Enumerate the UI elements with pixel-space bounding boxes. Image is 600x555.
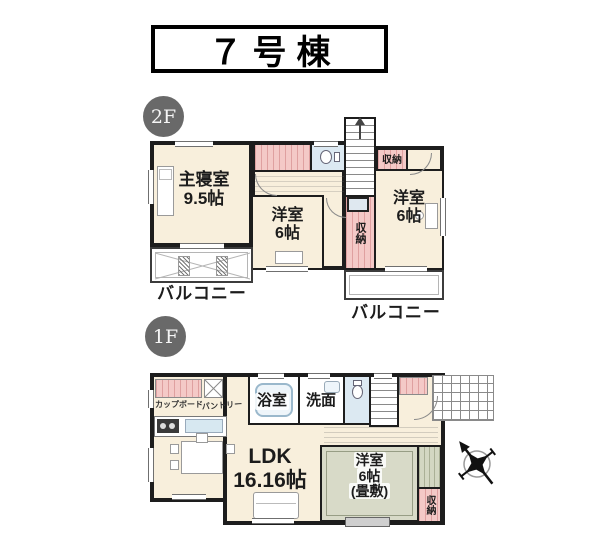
floor2-balcony-left — [150, 247, 253, 283]
floor1-plan: カップボード パントリー 浴室 洗面 — [0, 330, 600, 555]
floor2-west-mid-label: 洋室 6帖 — [251, 207, 324, 243]
floor1-closet-topright — [399, 377, 428, 395]
toilet-tank-icon — [334, 152, 340, 162]
floor2-west-right-label: 洋室 6帖 — [374, 190, 444, 226]
vanity-icon — [347, 197, 369, 212]
floor2-plan: 収納 洋室 6帖 洋室 6帖 収納 主寝室 9.5帖 — [0, 0, 600, 330]
room-size: 6帖 — [397, 208, 422, 225]
chair-icon — [196, 433, 208, 443]
stairs-up-arrowhead-icon — [355, 117, 365, 125]
kitchen-sink-icon — [185, 419, 223, 433]
toilet-icon — [352, 385, 363, 399]
floor1-storage: 収納 — [417, 487, 442, 523]
floor2-closet-top — [253, 143, 312, 172]
floor2-storage-top-label: 収納 — [382, 155, 402, 166]
room-size: 9.5帖 — [184, 189, 225, 208]
sofa-back — [256, 495, 296, 504]
room-name: LDK — [248, 445, 291, 468]
room-name: 洋室 — [393, 190, 425, 207]
room-name: 洋室 — [271, 207, 303, 224]
window — [175, 141, 213, 147]
window-bay — [345, 517, 390, 527]
room-name: 洋室 — [354, 452, 386, 468]
floor1-hallway — [324, 427, 438, 445]
balcony-rail — [349, 275, 439, 295]
floor1-wash-label: 洗面 — [304, 393, 338, 410]
toilet-tank-icon — [353, 380, 362, 386]
window — [148, 390, 154, 408]
floor2-balcony-right-label: バルコニー — [344, 303, 448, 322]
sofa-icon — [253, 492, 299, 519]
balcony-post — [216, 256, 228, 276]
chair-icon — [170, 444, 179, 454]
window — [385, 266, 427, 272]
window — [314, 141, 338, 147]
balcony-cross-lines — [152, 249, 255, 285]
window — [258, 373, 284, 379]
floor2-storage-mid-label: 収納 — [352, 222, 368, 244]
floor1-storage-label: 収納 — [422, 495, 437, 515]
floor1-bathroom: 浴室 — [248, 375, 300, 425]
room-note: (畳敷) — [349, 483, 390, 499]
floor2-master-label: 主寝室 9.5帖 — [158, 170, 250, 208]
window — [308, 373, 330, 379]
entrance-porch-tiles — [432, 375, 494, 421]
window — [252, 518, 294, 524]
floor2-balcony-right — [344, 270, 444, 300]
floor1-tatami-label: 洋室 6帖 (畳敷) — [322, 453, 417, 500]
kitchen-counter — [154, 416, 227, 437]
burner-icon — [169, 423, 175, 429]
floor2-toilet-room — [310, 143, 346, 172]
window — [148, 170, 154, 204]
compass-icon — [448, 435, 506, 493]
floor1-washroom: 洗面 — [298, 375, 345, 425]
floor1-closet-striped — [417, 445, 442, 489]
window — [180, 243, 224, 249]
room-size: 16.16帖 — [233, 469, 307, 492]
floor1-tatami-room: 洋室 6帖 (畳敷) — [320, 445, 419, 522]
floor1-bath-label: 浴室 — [255, 393, 289, 410]
floor2-balcony-left-label: バルコニー — [152, 284, 252, 303]
chair-icon — [170, 460, 179, 470]
room-size: 6帖 — [275, 225, 300, 242]
balcony-post — [178, 256, 190, 276]
toilet-icon — [320, 150, 332, 164]
window — [172, 494, 206, 500]
floor1-ldk-label: LDK 16.16帖 — [210, 445, 330, 492]
floor2-stairs — [344, 117, 376, 197]
room-name: 主寝室 — [179, 170, 230, 189]
dresser-icon — [275, 251, 303, 264]
window — [148, 448, 154, 482]
floor1-pantry — [204, 379, 223, 398]
window — [266, 266, 308, 272]
floor1-toilet-room — [343, 375, 371, 425]
burner-icon — [160, 423, 166, 429]
window — [374, 373, 392, 379]
room-size: 6帖 — [357, 468, 383, 484]
floor1-cupboard — [155, 379, 202, 398]
floor1-stairs — [369, 375, 399, 427]
pantry-cross-icon — [205, 380, 222, 397]
stove-icon — [157, 419, 179, 433]
window — [440, 198, 446, 236]
